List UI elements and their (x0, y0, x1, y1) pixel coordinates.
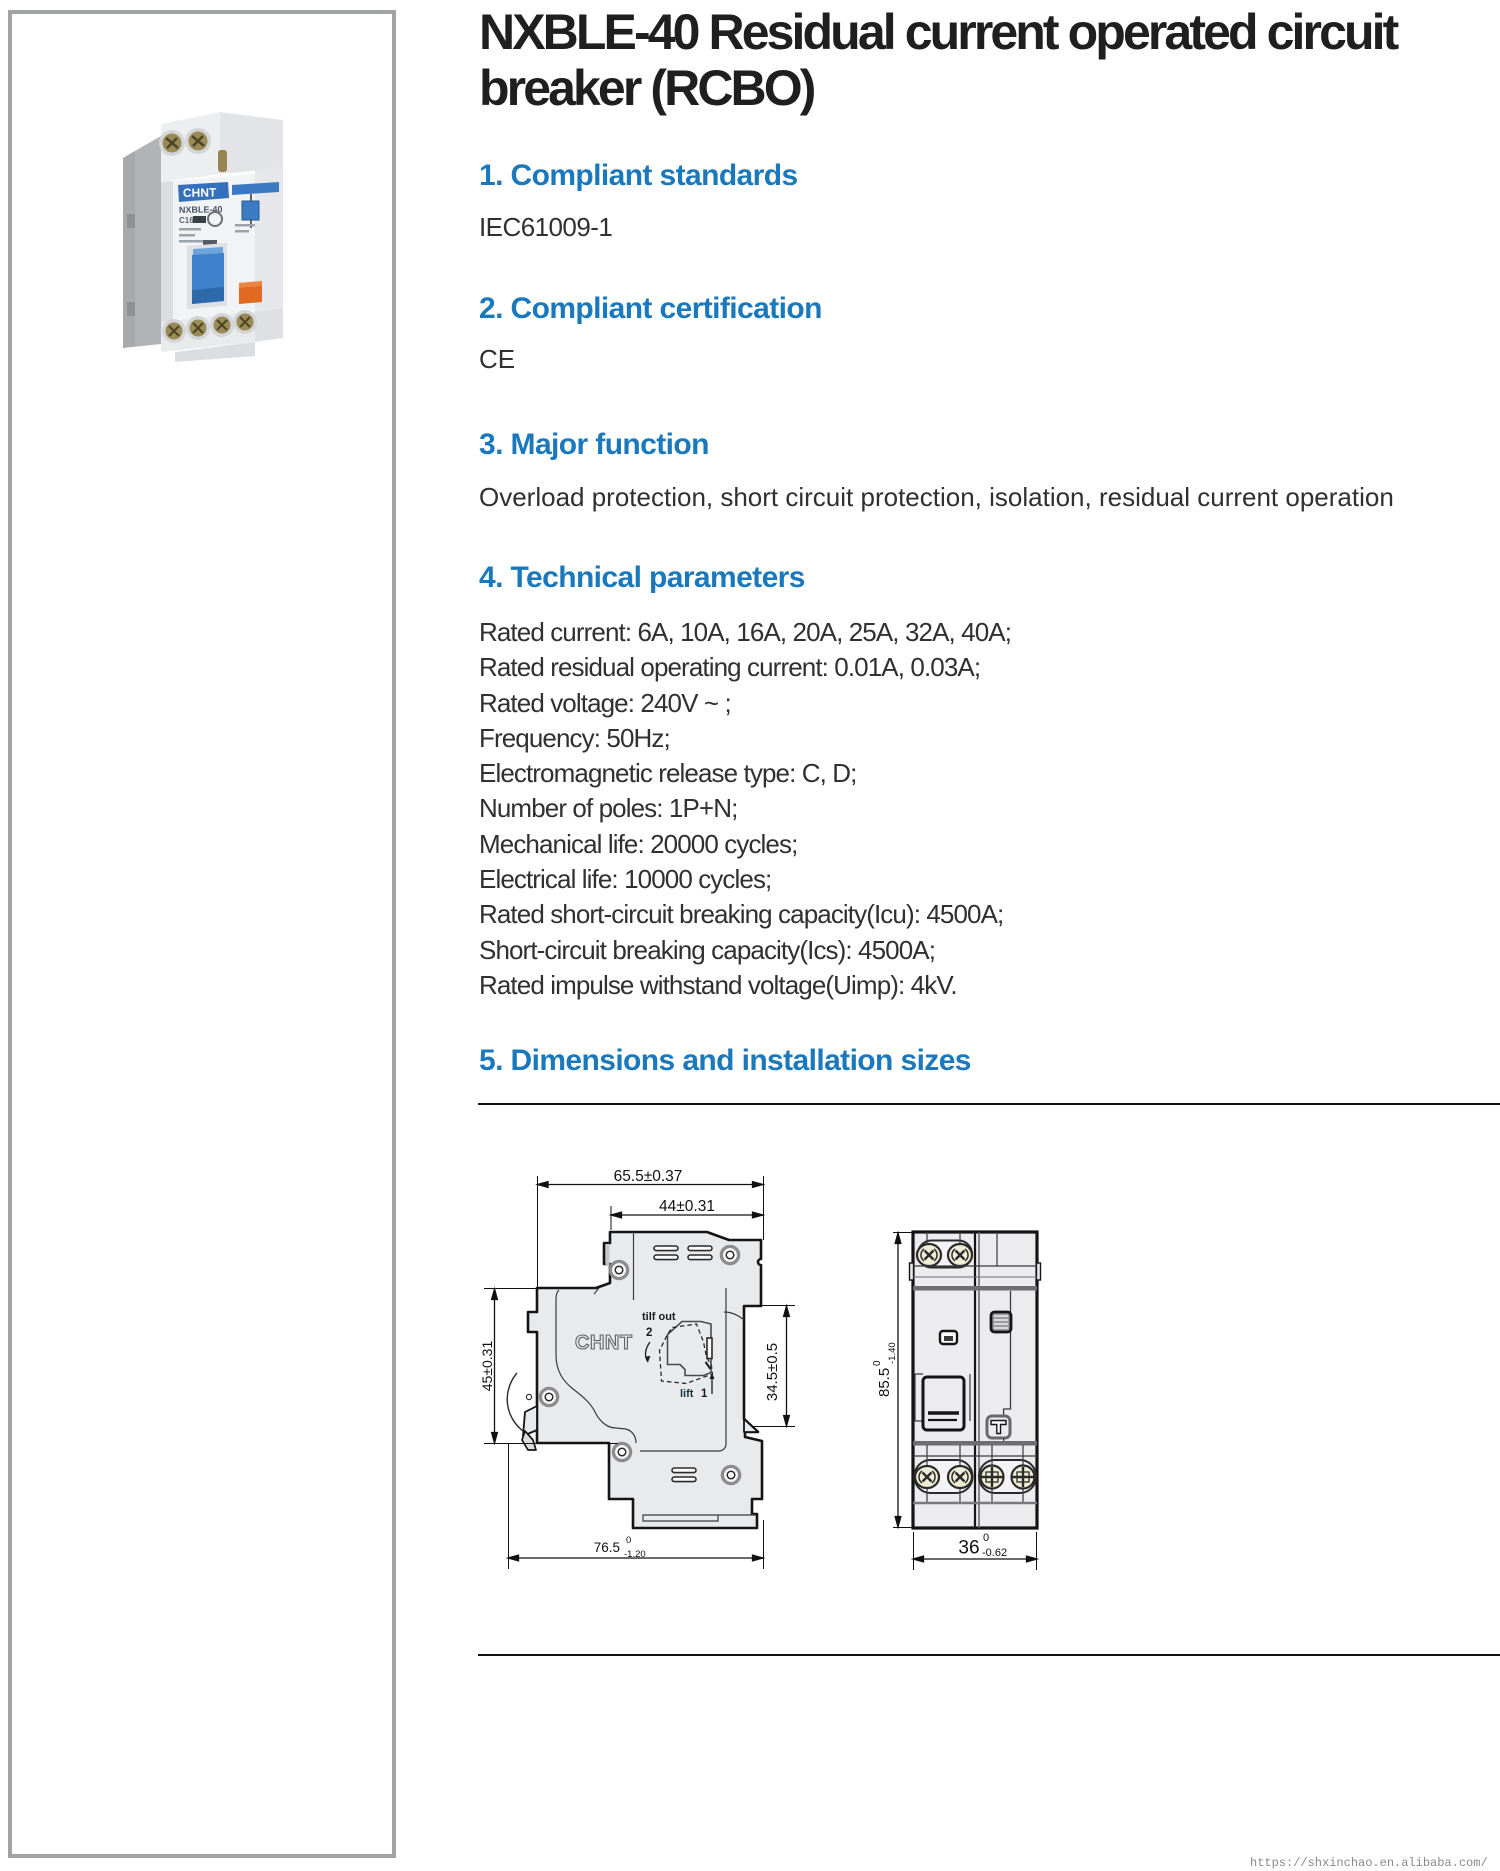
svg-text:0: 0 (626, 1535, 631, 1546)
svg-text:C16: C16 (179, 216, 194, 225)
svg-text:76.5: 76.5 (594, 1540, 620, 1555)
svg-text:CHNT: CHNT (183, 185, 217, 200)
svg-text:0: 0 (872, 1360, 883, 1366)
svg-text:44±0.31: 44±0.31 (659, 1198, 715, 1215)
svg-text:-0.62: -0.62 (982, 1547, 1007, 1559)
svg-text:0: 0 (983, 1532, 989, 1544)
svg-text:65.5±0.37: 65.5±0.37 (614, 1168, 683, 1185)
svg-text:36: 36 (958, 1538, 979, 1559)
svg-text:34.5±0.5: 34.5±0.5 (764, 1343, 781, 1401)
svg-text:lift: lift (680, 1388, 694, 1400)
svg-text:85.5: 85.5 (876, 1368, 893, 1397)
svg-text:tilf out: tilf out (642, 1311, 676, 1323)
svg-text:NXBLE-40: NXBLE-40 (179, 204, 223, 215)
svg-text:1: 1 (701, 1388, 708, 1400)
svg-text:45±0.31: 45±0.31 (480, 1341, 495, 1392)
svg-text:2: 2 (646, 1327, 652, 1339)
svg-text:-1.40: -1.40 (887, 1342, 898, 1364)
svg-text:CHNT: CHNT (575, 1332, 633, 1354)
